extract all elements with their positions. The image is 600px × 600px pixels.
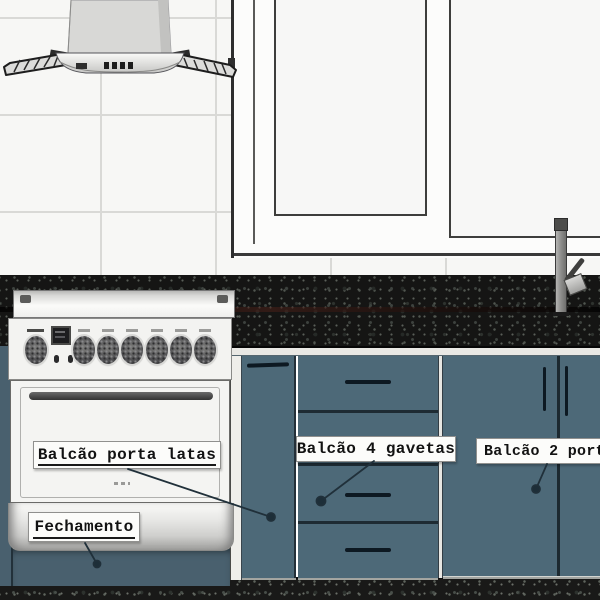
porta-latas-door[interactable] [242,356,296,578]
label-text: Balcão porta latas [38,446,216,464]
stove-top-band [13,290,235,318]
hood-glass-wing-right [174,54,236,77]
drawer-handle [345,493,391,497]
window-pane-left [274,0,427,216]
label-quatro-gavetas[interactable]: Balcão 4 gavetas [296,436,456,462]
drawer-1[interactable] [298,356,438,410]
faucet[interactable] [555,218,567,316]
stove-knob[interactable] [194,336,216,364]
door-handle [543,367,546,411]
label-porta-latas[interactable]: Balcão porta latas [33,441,221,469]
window-pane-right [449,0,600,238]
lid-hinge-right [217,295,228,303]
label-text: Fechamento [34,518,133,536]
lid-hinge-left [20,295,31,303]
hood-body [56,53,184,73]
window-frame-line [253,0,255,244]
door-handle [247,362,289,367]
stove-knob[interactable] [97,336,119,364]
drawer-handle [345,548,391,552]
drawer-handle [345,380,391,384]
fechamento-panel[interactable] [13,549,230,586]
stove-button[interactable] [68,355,73,363]
stove-knob[interactable] [73,336,95,364]
door-handle [565,366,568,416]
door-seam [557,356,560,576]
brand-mark [114,482,130,485]
stove-knob[interactable] [25,336,47,364]
window[interactable] [231,0,600,258]
label-duas-portas[interactable]: Balcão 2 port [476,438,600,464]
hood-glass-wing-left [4,54,66,75]
faucet-base [553,312,569,316]
stove-knob[interactable] [146,336,168,364]
stove-button[interactable] [54,355,59,363]
label-underline [33,537,135,539]
drawer-3[interactable] [298,463,438,521]
cabinet-top-rail [229,348,600,356]
range-hood[interactable] [0,0,240,84]
kitchen-elevation-drawing: Balcão porta latas Balcão 4 gavetas Balc… [0,0,600,600]
hood-label [76,63,87,69]
drawer-unit[interactable] [298,356,438,578]
label-fechamento[interactable]: Fechamento [28,512,140,542]
stove-display [51,326,71,345]
hood-chimney [68,0,171,53]
stove-control-panel [8,318,232,380]
label-text: Balcão 4 gavetas [297,440,455,458]
two-door-cabinet[interactable] [443,356,600,576]
stove-knob[interactable] [121,336,143,364]
stove-knob[interactable] [170,336,192,364]
faucet-cap [554,218,568,231]
label-underline [38,464,216,466]
drawer-4[interactable] [298,521,438,578]
window-sill [234,253,600,256]
label-text: Balcão 2 port [484,443,600,460]
